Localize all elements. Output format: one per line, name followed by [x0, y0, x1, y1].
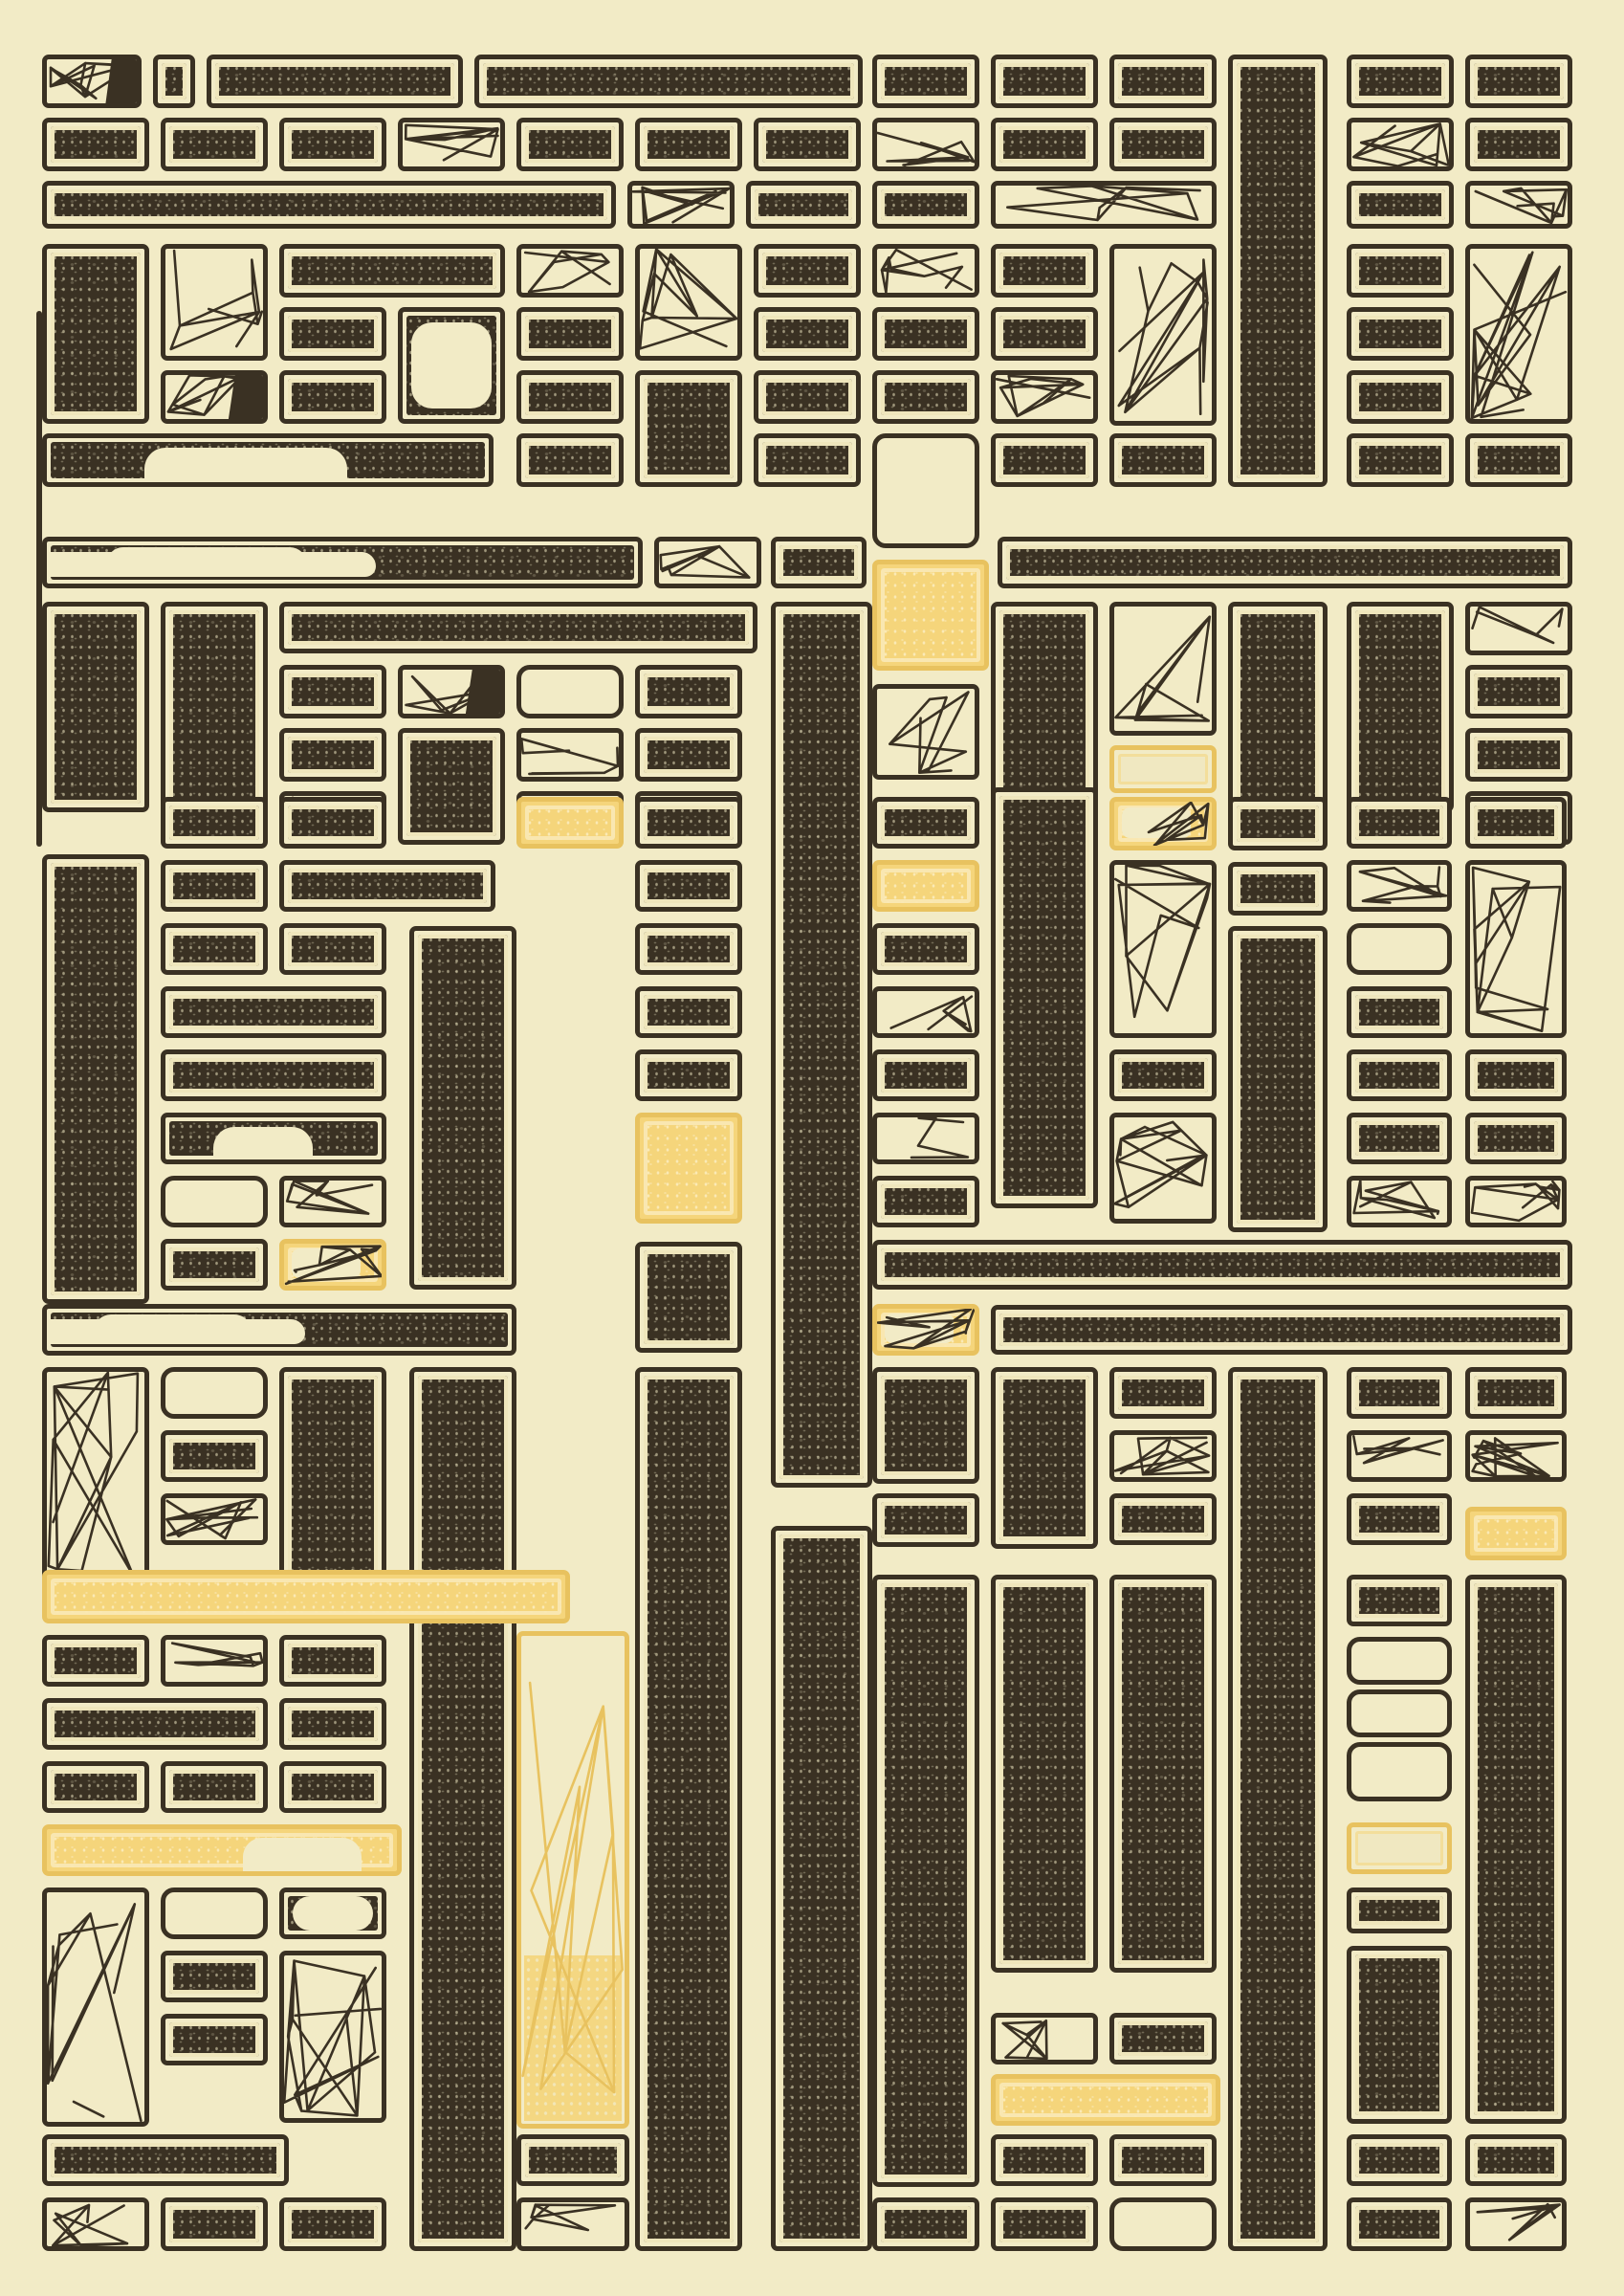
- art-cell-dark-speckled-block: [279, 728, 386, 782]
- art-cell-dark-speckled-block: [1228, 55, 1328, 487]
- art-cell-dark-speckled-block: [991, 307, 1098, 361]
- art-cell-yellow-block: [42, 1570, 570, 1623]
- art-cell-cream-pill-cell: [1347, 1689, 1452, 1737]
- art-cell-dark-speckled-block: [161, 1239, 268, 1291]
- art-cell-dark-speckled-block: [1347, 307, 1454, 361]
- art-cell-cream-web-lines-cell: [872, 1113, 979, 1164]
- art-cell-dark-speckled-block: [1347, 181, 1454, 229]
- art-cell-dark-speckled-block: [161, 2014, 268, 2065]
- art-cell-dark-speckled-block: [872, 2197, 979, 2251]
- art-cell-cream-web-lines-cell: [1347, 118, 1454, 171]
- art-cell-cream-pill-cell: [161, 1176, 268, 1227]
- art-cell-dark-speckled-block: [746, 181, 861, 229]
- art-cell-dark-speckled-block: [1347, 55, 1454, 108]
- art-cell-dark-speckled-block: [635, 860, 742, 912]
- art-cell-dark-speckled-block: [754, 307, 861, 361]
- art-cell-dark-speckled-block: [1228, 862, 1328, 916]
- art-cell-cream-web-lines-cell: [1347, 1176, 1452, 1227]
- art-cell-dark-speckled-block: [42, 1698, 268, 1750]
- art-cell-dark-speckled-block: [1347, 433, 1454, 487]
- art-cell-dark-speckled-block: [279, 2197, 386, 2251]
- art-cell-dark-bar-with-cream-dome: [161, 1113, 386, 1164]
- art-cell-dark-speckled-block: [42, 118, 149, 171]
- art-cell-yellow-block: [635, 1113, 742, 1224]
- art-cell-dark-speckled-block: [161, 797, 268, 849]
- art-cell-dark-speckled-block: [1347, 2197, 1452, 2251]
- art-cell-dark-speckled-block: [1465, 1113, 1567, 1164]
- art-cell-cream-web-lines-cell: [398, 118, 505, 171]
- art-cell-dark-speckled-block: [754, 370, 861, 424]
- art-cell-cream-web-lines-cell: [1465, 1176, 1567, 1227]
- art-cell-dark-speckled-block: [1347, 797, 1452, 849]
- art-cell-dark-speckled-block: [872, 923, 979, 975]
- art-cell-cream-web-lines-cell: [1465, 181, 1572, 229]
- art-cell-dark-speckled-block: [42, 854, 149, 1304]
- art-cell-cream-web-lines-cell: [516, 244, 624, 298]
- art-cell-dark-speckled-block: [991, 2134, 1098, 2186]
- art-cell-dark-speckled-block: [1228, 797, 1328, 850]
- art-cell-dark-speckled-block: [991, 1575, 1098, 1973]
- art-cell-dark-speckled-block: [991, 787, 1098, 1208]
- art-cell-cream-web-lines-cell: [161, 1493, 268, 1545]
- art-cell-dark-speckled-block: [1109, 2134, 1217, 2186]
- art-cell-yellow-block: [1465, 1507, 1567, 1560]
- art-cell-dark-speckled-block: [771, 1526, 872, 2251]
- art-cell-dark-speckled-block: [161, 986, 386, 1038]
- art-cell-dark-speckled-block: [42, 1635, 149, 1687]
- art-cell-dark-speckled-block: [516, 118, 624, 171]
- thin-ink-line: [36, 311, 42, 847]
- art-cell-dark-speckled-block: [1465, 797, 1567, 849]
- art-cell-dark-speckled-block: [872, 370, 979, 424]
- art-cell-dark-speckled-block: [991, 433, 1098, 487]
- art-cell-dark-speckled-block: [1347, 370, 1454, 424]
- art-cell-dark-speckled-block: [1347, 2134, 1452, 2186]
- art-cell-dark-speckled-block: [754, 244, 861, 298]
- art-cell-dark-speckled-block: [635, 923, 742, 975]
- art-cell-yellow-block: [872, 560, 989, 671]
- art-cell-cream-web-lines-cell: [872, 684, 979, 780]
- art-cell-dark-speckled-block: [1465, 1575, 1567, 2124]
- art-cell-cream-web-lines-cell: [654, 537, 761, 588]
- art-cell-dark-speckled-block: [991, 55, 1098, 108]
- art-cell-cream-web-lines-cell: [279, 1176, 386, 1227]
- art-cell-dark-speckled-block: [1109, 1049, 1217, 1101]
- art-cell-dark-bar-with-cream-dome: [42, 433, 494, 487]
- art-cell-dark-speckled-block: [161, 118, 268, 171]
- art-cell-dark-speckled-block: [516, 307, 624, 361]
- art-cell-dark-speckled-block: [42, 244, 149, 424]
- art-cell-dark-block-with-cream-blob: [398, 307, 505, 424]
- art-cell-cream-web-cell-with-dark-corner: [42, 55, 142, 108]
- art-cell-cream-web-lines-cell: [1109, 860, 1217, 1038]
- art-cell-dark-speckled-block: [516, 433, 624, 487]
- art-cell-cream-web-lines-cell: [627, 181, 735, 229]
- art-cell-dark-speckled-block: [991, 244, 1098, 298]
- art-cell-dark-speckled-block: [1465, 433, 1572, 487]
- art-cell-dark-speckled-block: [279, 244, 505, 298]
- art-cell-dark-speckled-block: [635, 1367, 742, 2251]
- art-cell-dark-speckled-block: [516, 370, 624, 424]
- art-cell-dark-speckled-block: [279, 1367, 386, 1587]
- art-cell-dark-speckled-block: [1109, 1367, 1217, 1419]
- art-cell-cream-web-lines-cell: [1465, 2197, 1567, 2251]
- art-cell-dark-speckled-block: [1109, 433, 1217, 487]
- art-cell-dark-speckled-block: [872, 1575, 979, 2187]
- art-cell-dark-speckled-block: [1347, 986, 1452, 1038]
- art-cell-dark-speckled-block: [635, 986, 742, 1038]
- art-cell-dark-speckled-block: [279, 923, 386, 975]
- art-cell-cream-web-lines-cell: [991, 181, 1217, 229]
- art-cell-dark-speckled-block: [991, 1305, 1572, 1355]
- art-cell-yellow-block: [516, 797, 624, 849]
- art-cell-dark-speckled-block: [1347, 1946, 1452, 2124]
- art-cell-yellow-block: [872, 860, 979, 912]
- art-cell-cream-web-cell-with-dark-corner: [161, 370, 268, 424]
- art-cell-dark-speckled-block: [872, 1240, 1572, 1290]
- art-cell-dark-speckled-block: [161, 602, 268, 812]
- art-cell-dark-speckled-block: [872, 1367, 979, 1484]
- art-cell-dark-speckled-block: [771, 537, 867, 588]
- art-cell-cream-web-cell-with-dark-corner: [398, 665, 505, 718]
- art-cell-yellow-bar-with-cream-dome: [42, 1824, 402, 1876]
- art-cell-dark-speckled-block: [754, 118, 861, 171]
- art-cell-dark-speckled-block: [1228, 602, 1328, 812]
- art-cell-cream-web-lines-cell: [161, 244, 268, 361]
- art-cell-dark-speckled-block: [635, 797, 742, 849]
- art-cell-dark-speckled-block: [42, 2134, 289, 2186]
- art-cell-dark-speckled-block: [991, 2197, 1098, 2251]
- art-cell-dark-speckled-block: [161, 923, 268, 975]
- art-cell-dark-speckled-block: [771, 602, 872, 1488]
- art-cell-dark-bar-with-cream-wave: [42, 537, 643, 588]
- art-cell-dark-speckled-block: [1109, 118, 1217, 171]
- art-cell-dark-speckled-block: [1465, 118, 1572, 171]
- art-cell-cream-web-lines-cell: [1347, 860, 1452, 912]
- art-cell-dark-speckled-block: [42, 181, 616, 229]
- art-cell-dark-speckled-block: [42, 602, 149, 812]
- art-cell-dark-speckled-block: [279, 602, 757, 653]
- art-cell-dark-speckled-block: [398, 728, 505, 845]
- art-cell-dark-speckled-block: [161, 1430, 268, 1482]
- art-cell-yellow-bordered-cream-cell: [1109, 745, 1217, 793]
- art-cell-dark-speckled-block: [872, 181, 979, 229]
- art-cell-dark-speckled-block: [1347, 602, 1454, 812]
- art-cell-yellow-web-lines-cell: [1109, 797, 1217, 850]
- art-cell-cream-pill-cell: [872, 433, 979, 548]
- generative-artwork: [0, 0, 1624, 2296]
- art-cell-yellow-block: [991, 2074, 1220, 2126]
- art-cell-cream-web-lines-cell: [991, 370, 1098, 424]
- art-cell-dark-speckled-block: [872, 797, 979, 849]
- art-cell-dark-speckled-block: [279, 1761, 386, 1813]
- art-cell-dark-block-with-cream-blob: [279, 1888, 386, 1939]
- art-cell-dark-speckled-block: [1109, 55, 1217, 108]
- art-cell-dark-speckled-block: [991, 118, 1098, 171]
- art-cell-dark-speckled-block: [1465, 55, 1572, 108]
- art-cell-yellow-web-lines-cell: [872, 1304, 979, 1356]
- art-cell-cream-web-lines-cell: [872, 118, 979, 171]
- art-cell-dark-speckled-block: [872, 307, 979, 361]
- art-cell-dark-speckled-block: [991, 602, 1098, 812]
- art-cell-cream-web-lines-cell: [872, 244, 979, 298]
- art-cell-cream-web-lines-cell: [872, 986, 979, 1038]
- art-cell-dark-speckled-block: [635, 1049, 742, 1101]
- art-cell-dark-speckled-block: [279, 1698, 386, 1750]
- art-cell-dark-bar-with-cream-wave: [42, 1304, 516, 1356]
- art-cell-dark-speckled-block: [998, 537, 1572, 588]
- art-cell-cream-web-lines-cell: [1465, 602, 1572, 655]
- art-cell-dark-speckled-block: [1109, 1493, 1217, 1545]
- art-cell-dark-speckled-block: [161, 1951, 268, 2002]
- art-cell-dark-speckled-block: [1465, 665, 1572, 718]
- art-cell-cream-web-lines-cell: [1109, 244, 1217, 426]
- art-cell-dark-speckled-block: [409, 1367, 516, 2251]
- art-cell-dark-speckled-block: [635, 370, 742, 487]
- art-cell-dark-speckled-block: [635, 665, 742, 718]
- art-cell-cream-web-lines-cell: [1465, 1430, 1567, 1482]
- art-cell-dark-speckled-block: [1347, 244, 1454, 298]
- art-cell-dark-speckled-block: [279, 307, 386, 361]
- art-cell-dark-speckled-block: [161, 1761, 268, 1813]
- art-cell-cream-pill-cell: [161, 1367, 268, 1419]
- art-cell-dark-speckled-block: [635, 728, 742, 782]
- art-cell-dark-speckled-block: [279, 118, 386, 171]
- art-cell-dark-speckled-block: [42, 1761, 149, 1813]
- art-cell-yellow-web-panel: [516, 1631, 629, 2129]
- art-cell-dark-speckled-block: [1347, 1888, 1452, 1933]
- art-cell-dark-speckled-block: [872, 1493, 979, 1547]
- art-cell-cream-web-lines-cell: [516, 2197, 629, 2251]
- art-cell-dark-speckled-block: [161, 1049, 386, 1101]
- art-cell-dark-speckled-block: [161, 2197, 268, 2251]
- art-cell-dark-speckled-block: [1465, 728, 1572, 782]
- art-cell-cream-web-lines-cell: [42, 2197, 149, 2251]
- art-cell-cream-pill-cell: [1347, 923, 1452, 975]
- art-cell-cream-web-lines-cell: [1465, 244, 1572, 424]
- art-cell-dark-speckled-block: [1347, 1049, 1452, 1101]
- art-cell-cream-web-lines-cell: [1109, 602, 1217, 736]
- art-cell-dark-speckled-block: [635, 118, 742, 171]
- art-cell-cream-web-lines-cell: [1465, 860, 1567, 1038]
- art-cell-cream-web-lines-cell: [1109, 1430, 1217, 1482]
- art-cell-dark-speckled-block: [1347, 1575, 1452, 1626]
- art-cell-dark-speckled-block: [1347, 1493, 1452, 1545]
- art-cell-dark-speckled-block: [161, 860, 268, 912]
- art-cell-cream-pill-cell: [516, 665, 624, 718]
- art-cell-dark-speckled-block: [1347, 1113, 1452, 1164]
- art-cell-yellow-bordered-cream-cell: [1347, 1822, 1452, 1874]
- art-cell-dark-speckled-block: [635, 1242, 742, 1353]
- art-cell-cream-web-lines-cell: [635, 244, 742, 361]
- art-cell-cream-pill-cell: [1347, 1742, 1452, 1801]
- art-cell-dark-speckled-block: [279, 370, 386, 424]
- art-cell-dark-speckled-block: [474, 55, 863, 108]
- art-cell-dark-speckled-block: [279, 665, 386, 718]
- art-cell-dark-speckled-block: [279, 1635, 386, 1687]
- art-cell-cream-web-lines-cell: [279, 1951, 386, 2123]
- art-cell-cream-web-lines-cell: [161, 1635, 268, 1687]
- art-cell-dark-speckled-block: [1228, 1367, 1328, 2251]
- art-cell-cream-pill-cell: [161, 1888, 268, 1939]
- art-cell-dark-speckled-block: [872, 1176, 979, 1227]
- art-cell-dark-speckled-block: [1109, 2013, 1217, 2064]
- art-cell-cream-pill-cell: [1109, 2197, 1217, 2251]
- art-cell-cream-web-lines-cell: [1109, 1113, 1217, 1224]
- art-cell-dark-speckled-block: [1465, 2134, 1567, 2186]
- art-cell-dark-speckled-block: [754, 433, 861, 487]
- art-cell-dark-speckled-block: [516, 2134, 629, 2186]
- art-cell-cream-web-lines-cell: [991, 2013, 1098, 2064]
- art-cell-dark-speckled-block: [872, 1049, 979, 1101]
- art-cell-dark-speckled-block: [1465, 1049, 1567, 1101]
- art-cell-dark-speckled-block: [279, 797, 386, 849]
- art-cell-dark-speckled-block: [279, 860, 495, 912]
- art-cell-cream-web-lines-cell: [42, 1367, 149, 1587]
- art-cell-dark-speckled-block: [1228, 926, 1328, 1232]
- art-cell-dark-speckled-block: [409, 926, 516, 1290]
- art-cell-cream-web-lines-cell: [516, 728, 624, 782]
- art-cell-dark-speckled-block: [153, 55, 195, 108]
- art-cell-dark-speckled-block: [872, 55, 979, 108]
- art-cell-dark-speckled-block: [1465, 1367, 1567, 1419]
- art-cell-dark-speckled-block: [1109, 1575, 1217, 1973]
- art-cell-dark-speckled-block: [1347, 1367, 1452, 1419]
- art-cell-cream-web-lines-cell: [42, 1888, 149, 2127]
- art-cell-cream-web-lines-cell: [1347, 1430, 1452, 1482]
- art-cell-dark-speckled-block: [207, 55, 463, 108]
- art-cell-cream-pill-cell: [1347, 1637, 1452, 1685]
- art-cell-yellow-web-lines-cell: [279, 1239, 386, 1291]
- art-cell-dark-speckled-block: [991, 1367, 1098, 1549]
